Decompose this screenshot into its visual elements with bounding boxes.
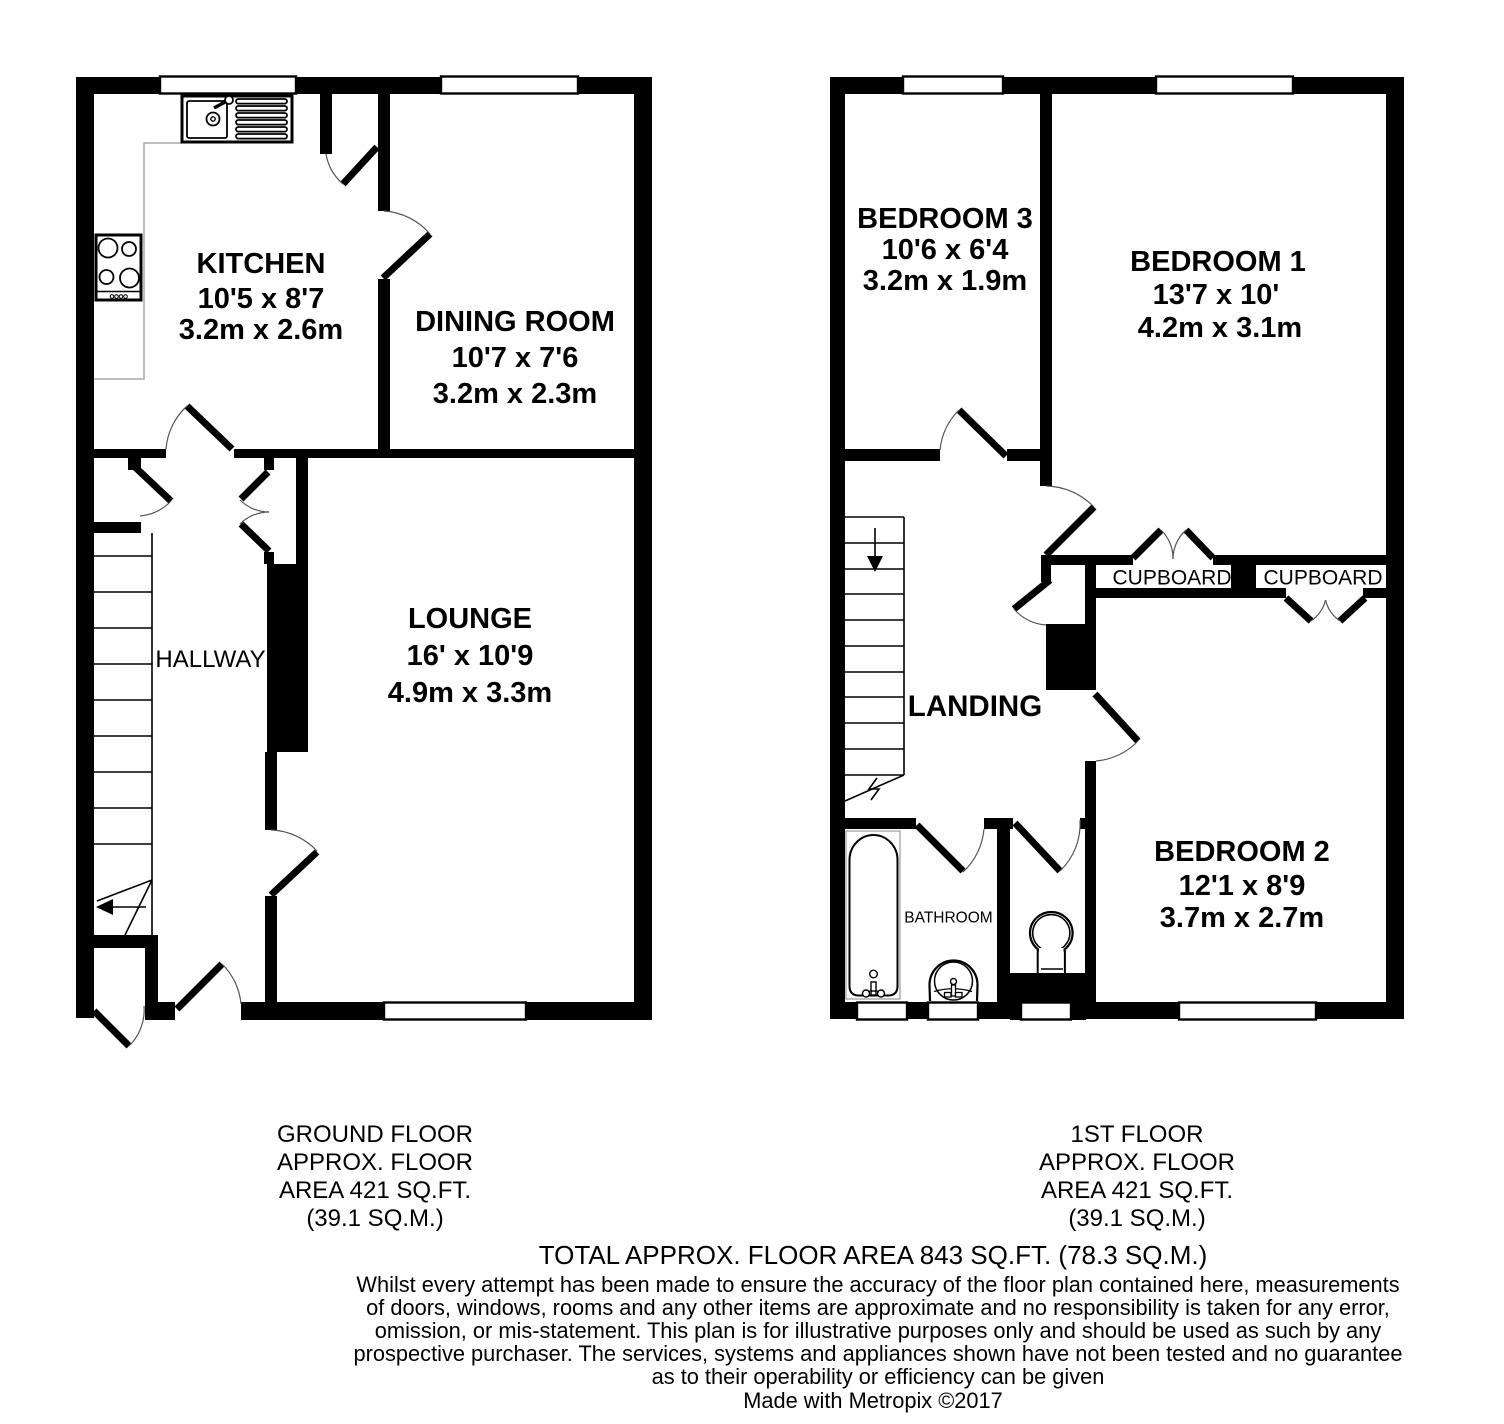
svg-text:12'1 x 8'9: 12'1 x 8'9 (1179, 870, 1306, 902)
svg-text:3.7m x 2.7m: 3.7m x 2.7m (1160, 902, 1324, 934)
svg-text:omission, or mis-statement. Th: omission, or mis-statement. This plan is… (375, 1318, 1381, 1343)
svg-text:BEDROOM 3: BEDROOM 3 (857, 203, 1033, 235)
svg-text:10'5 x 8'7: 10'5 x 8'7 (198, 283, 325, 315)
svg-text:AREA 421 SQ.FT.: AREA 421 SQ.FT. (279, 1177, 471, 1204)
svg-text:APPROX. FLOOR: APPROX. FLOOR (1039, 1149, 1235, 1176)
svg-text:TOTAL APPROX. FLOOR AREA 843 S: TOTAL APPROX. FLOOR AREA 843 SQ.FT. (78.… (539, 1240, 1208, 1270)
svg-text:LOUNGE: LOUNGE (408, 603, 532, 635)
svg-text:CUPBOARD: CUPBOARD (1263, 567, 1382, 590)
svg-text:3.2m x 1.9m: 3.2m x 1.9m (863, 265, 1027, 297)
svg-text:LANDING: LANDING (908, 690, 1042, 723)
svg-text:10'6 x 6'4: 10'6 x 6'4 (882, 234, 1009, 266)
svg-text:GROUND FLOOR: GROUND FLOOR (277, 1121, 473, 1148)
svg-text:APPROX. FLOOR: APPROX. FLOOR (277, 1149, 473, 1176)
svg-text:KITCHEN: KITCHEN (197, 248, 326, 280)
svg-text:1ST FLOOR: 1ST FLOOR (1071, 1121, 1204, 1148)
svg-text:HALLWAY: HALLWAY (155, 646, 265, 673)
svg-text:16' x 10'9: 16' x 10'9 (407, 640, 534, 672)
svg-text:10'7 x 7'6: 10'7 x 7'6 (452, 342, 579, 374)
svg-text:CUPBOARD: CUPBOARD (1112, 567, 1231, 590)
svg-text:Whilst every attempt has been: Whilst every attempt has been made to en… (356, 1272, 1399, 1297)
svg-text:BEDROOM 2: BEDROOM 2 (1154, 836, 1330, 868)
svg-text:4.9m x 3.3m: 4.9m x 3.3m (388, 677, 552, 709)
svg-text:AREA 421 SQ.FT.: AREA 421 SQ.FT. (1041, 1177, 1233, 1204)
svg-text:13'7 x 10': 13'7 x 10' (1153, 279, 1280, 311)
svg-text:BEDROOM 1: BEDROOM 1 (1130, 246, 1306, 278)
svg-text:3.2m x 2.6m: 3.2m x 2.6m (179, 314, 343, 346)
svg-text:of doors, windows, rooms and a: of doors, windows, rooms and any other i… (366, 1295, 1390, 1320)
svg-text:(39.1 SQ.M.): (39.1 SQ.M.) (306, 1205, 443, 1232)
svg-text:prospective purchaser. The ser: prospective purchaser. The services, sys… (354, 1341, 1403, 1366)
svg-text:4.2m x 3.1m: 4.2m x 3.1m (1138, 312, 1302, 344)
svg-text:as to their operability or eff: as to their operability or efficiency ca… (652, 1364, 1105, 1389)
svg-text:Made with Metropix ©2017: Made with Metropix ©2017 (743, 1388, 1003, 1413)
svg-text:(39.1 SQ.M.): (39.1 SQ.M.) (1068, 1205, 1205, 1232)
svg-text:3.2m x 2.3m: 3.2m x 2.3m (433, 378, 597, 410)
svg-text:BATHROOM: BATHROOM (904, 910, 992, 927)
svg-text:DINING ROOM: DINING ROOM (415, 306, 615, 338)
